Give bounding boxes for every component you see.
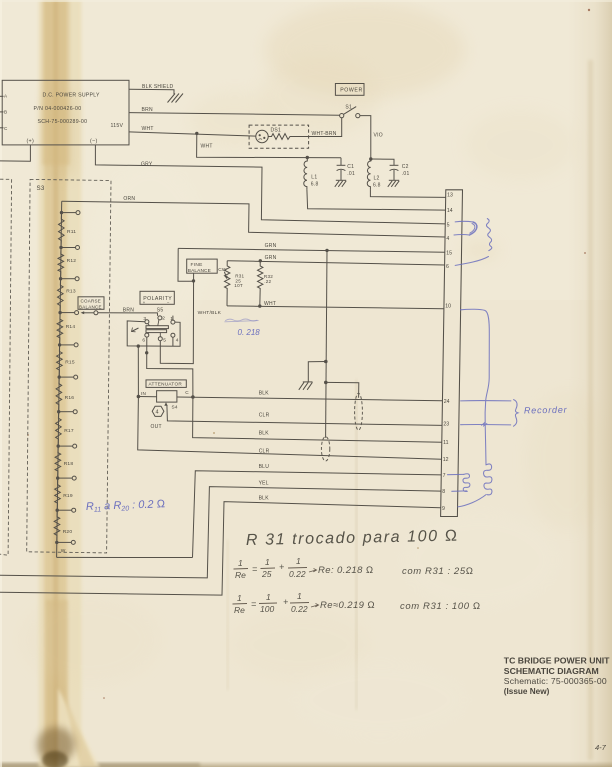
svg-text:0.22: 0.22 (289, 569, 306, 579)
svg-text:(Issue New): (Issue New) (504, 687, 550, 696)
svg-text:=: = (251, 599, 256, 609)
svg-text:GRN: GRN (265, 243, 277, 249)
svg-text:1: 1 (170, 316, 173, 322)
svg-text:4: 4 (446, 236, 449, 242)
svg-text:BALANCE: BALANCE (188, 268, 211, 274)
svg-text:13: 13 (447, 193, 453, 199)
svg-text:1: 1 (266, 592, 271, 602)
svg-text:(+): (+) (27, 138, 35, 144)
svg-text:YEL: YEL (259, 480, 269, 486)
svg-text:25: 25 (261, 569, 272, 579)
svg-text:CLR: CLR (259, 449, 270, 455)
svg-text:R18: R18 (64, 461, 74, 467)
svg-text:CW: CW (218, 267, 227, 273)
svg-text:BRN: BRN (142, 107, 153, 113)
svg-text:WHT: WHT (264, 301, 276, 307)
svg-text:=: = (252, 564, 257, 574)
svg-text:SCHEMATIC DIAGRAM: SCHEMATIC DIAGRAM (504, 666, 599, 676)
svg-text:10: 10 (445, 304, 451, 310)
svg-text:Recorder: Recorder (524, 405, 568, 416)
svg-text:1: 1 (297, 591, 302, 601)
svg-text:VIO: VIO (374, 133, 383, 139)
svg-text:(−): (−) (90, 138, 98, 144)
svg-text:Re: Re (235, 570, 246, 580)
svg-text:com R31 : 100 Ω: com R31 : 100 Ω (400, 601, 481, 612)
svg-text:BRN: BRN (123, 307, 134, 313)
svg-text:W: W (61, 548, 66, 554)
svg-text:R14: R14 (66, 324, 76, 330)
svg-text:Re≈0.219 Ω: Re≈0.219 Ω (320, 600, 375, 611)
svg-text:COARSE: COARSE (81, 299, 102, 304)
svg-text:+: + (283, 597, 288, 607)
svg-text:23: 23 (443, 421, 449, 427)
svg-text:C: C (4, 126, 8, 131)
svg-text:IN: IN (141, 391, 146, 396)
svg-text:0. 218: 0. 218 (238, 328, 261, 337)
svg-text:S4: S4 (172, 405, 178, 410)
svg-text:1: 1 (238, 558, 243, 568)
svg-text:WHT-BRN: WHT-BRN (312, 131, 337, 137)
svg-text:100: 100 (260, 604, 274, 614)
svg-text:R16: R16 (65, 395, 75, 401)
svg-text:6.8: 6.8 (373, 182, 381, 188)
svg-text:C1: C1 (347, 164, 354, 170)
svg-text:.01: .01 (347, 171, 355, 177)
svg-text:TC BRIDGE POWER UNIT: TC BRIDGE POWER UNIT (504, 655, 610, 665)
svg-text:+: + (279, 562, 284, 572)
svg-text:C2: C2 (402, 164, 409, 170)
svg-text:GRY: GRY (141, 162, 153, 168)
svg-text:GRN: GRN (265, 255, 277, 261)
svg-text:com R31 : 25Ω: com R31 : 25Ω (402, 566, 474, 577)
svg-text:R19: R19 (63, 493, 73, 499)
svg-text:12: 12 (443, 457, 449, 463)
svg-text:.01: .01 (402, 171, 410, 177)
svg-text:1: 1 (265, 557, 270, 567)
svg-text:10T: 10T (234, 283, 243, 288)
svg-text:DS1: DS1 (271, 127, 281, 133)
svg-text:15: 15 (446, 251, 452, 257)
svg-text:11: 11 (443, 440, 448, 446)
svg-text:BLK SHIELD: BLK SHIELD (142, 84, 174, 90)
svg-text:S3: S3 (37, 185, 45, 192)
svg-text:1: 1 (296, 556, 301, 566)
svg-text:P/N 04-000426-00: P/N 04-000426-00 (34, 106, 82, 112)
svg-text:−: − (167, 300, 170, 305)
svg-text:L2: L2 (374, 175, 380, 181)
svg-text:ORN: ORN (123, 196, 135, 202)
svg-text:WHT/BLK: WHT/BLK (198, 310, 222, 316)
svg-text:BLK: BLK (259, 496, 270, 502)
svg-text:BLK: BLK (259, 391, 270, 397)
svg-text:L1: L1 (311, 174, 317, 180)
svg-text:D.C. POWER SUPPLY: D.C. POWER SUPPLY (43, 93, 100, 99)
svg-text:14: 14 (447, 208, 453, 214)
svg-text:R11: R11 (67, 229, 76, 235)
svg-text:BLU: BLU (259, 464, 270, 470)
svg-text:3: 3 (143, 316, 146, 322)
svg-text:SCH-75-000289-00: SCH-75-000289-00 (38, 119, 88, 125)
svg-text:POWER: POWER (340, 88, 363, 94)
svg-text:Re: 0.218 Ω: Re: 0.218 Ω (318, 565, 374, 576)
svg-text:4-7: 4-7 (595, 743, 607, 752)
svg-text:0.22: 0.22 (291, 604, 308, 614)
svg-text:R12: R12 (67, 258, 77, 264)
svg-text:WHT: WHT (142, 126, 154, 132)
svg-text:6: 6 (446, 264, 449, 270)
svg-text:R20: R20 (63, 529, 73, 535)
svg-text:WHT: WHT (201, 143, 213, 149)
svg-text:Schematic: 75-000365-00: Schematic: 75-000365-00 (504, 676, 607, 686)
svg-text:+: + (143, 300, 146, 305)
svg-text:BALANCE: BALANCE (79, 304, 102, 309)
svg-text:BLK: BLK (259, 430, 270, 436)
svg-text:5: 5 (163, 338, 166, 344)
svg-text:Re: Re (234, 605, 245, 615)
svg-text:R15: R15 (65, 360, 75, 366)
svg-text:R13: R13 (66, 289, 76, 295)
svg-text:B: B (4, 110, 7, 115)
svg-text:R17: R17 (64, 428, 74, 434)
svg-text:.22: .22 (264, 279, 271, 284)
svg-text:24: 24 (444, 399, 450, 405)
svg-text:ATTENUATOR: ATTENUATOR (149, 382, 183, 387)
svg-text:6: 6 (142, 337, 145, 343)
svg-text:9: 9 (442, 506, 445, 512)
svg-text:S5: S5 (157, 307, 164, 313)
svg-text:5: 5 (447, 223, 450, 229)
svg-text:2: 2 (162, 316, 165, 322)
svg-text:6.8: 6.8 (311, 182, 319, 188)
svg-text:4: 4 (156, 410, 159, 416)
svg-text:7: 7 (443, 473, 446, 479)
svg-text:C: C (185, 390, 189, 395)
svg-text:8: 8 (442, 489, 445, 495)
svg-text:115V: 115V (111, 123, 124, 129)
svg-text:4: 4 (176, 337, 179, 343)
svg-text:FINE: FINE (191, 262, 203, 268)
svg-text:CLR: CLR (259, 413, 270, 419)
svg-text:1: 1 (237, 593, 242, 603)
svg-text:S1: S1 (345, 104, 352, 110)
svg-text:OUT: OUT (151, 424, 162, 430)
